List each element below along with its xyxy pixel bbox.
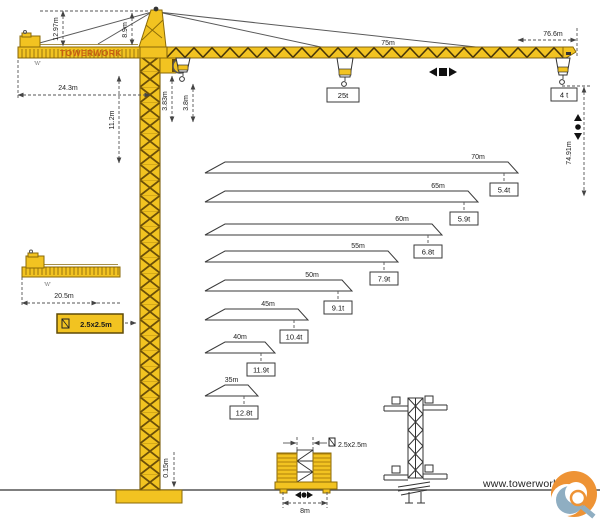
base-width-label: 8m (300, 508, 310, 515)
mast-section-label: 2.5x2.5m (80, 320, 112, 329)
hook-clearance-b-label: 3.8m (183, 95, 190, 111)
hook-travel-icon (574, 114, 582, 140)
counterweight-mark: 'W' (44, 282, 51, 288)
trolley-mid (337, 58, 353, 86)
anchorage-detail (384, 396, 447, 503)
jib-brand-text: TOWERWORK (60, 48, 122, 58)
jib-profile-65m (205, 191, 478, 202)
capacity-value: 6.8t (422, 248, 435, 257)
jib-profile-70m (205, 162, 518, 173)
jib-profile-55m (205, 251, 398, 262)
base-travel-icon (295, 492, 313, 499)
mast-section-badge: 2.5x2.5m (57, 314, 136, 333)
section-icon (329, 438, 335, 446)
jib-length-tick: 45m (261, 301, 275, 308)
jib-profile-50m (205, 280, 352, 291)
tip-pulley (566, 52, 571, 55)
apex-height-label: 8.9m (122, 22, 129, 38)
tower-apex (139, 10, 166, 47)
capacity-value: 5.4t (498, 186, 511, 195)
trolley-inner (176, 58, 190, 81)
towerwork-logo (551, 471, 597, 518)
hoist-winch (20, 36, 40, 47)
diagram-canvas: TOWERWORK 'W' 25t (0, 0, 600, 521)
foundation-block (116, 490, 182, 503)
trolley-tip (556, 58, 570, 84)
jib-profile-35m (205, 385, 258, 396)
jib-length-tick: 40m (233, 334, 247, 341)
counterweight-mark: 'W' (34, 61, 41, 67)
hoist-winch (26, 256, 44, 268)
crane-spec-diagram: TOWERWORK 'W' 25t (0, 0, 600, 521)
main-jib (167, 47, 563, 58)
tower-mast (140, 56, 160, 490)
head-height-label: 12.97m (53, 17, 60, 41)
counter-jib-length-label: 24.3m (58, 85, 78, 92)
jib-profile-45m (205, 309, 308, 320)
hook-clearance-a-label: 3.83m (162, 91, 169, 111)
hook-height-label: 74.91m (566, 141, 573, 165)
foundation-offset-label: 0.15m (163, 458, 170, 478)
mast-top-section-label: 11.2m (109, 110, 116, 129)
capacity-value: 7.9t (378, 275, 391, 284)
jib-length-tick: 70m (471, 154, 485, 161)
counter-jib-detail-length-label: 20.5m (54, 293, 74, 300)
load-capacity-chart: 70m5.4t65m5.9t60m6.8t55m7.9t50m9.1t45m10… (205, 154, 518, 419)
jib-length-tick: 55m (351, 243, 365, 250)
jib-length-tick: 60m (395, 216, 409, 223)
tie-bars (25, 12, 512, 51)
trolley-travel-icon (429, 68, 457, 77)
inner-tower-section-label: 2.5x2.5m (338, 442, 367, 449)
jib-length-tick: 65m (431, 183, 445, 190)
hook-icon (560, 80, 565, 85)
jib-profile-60m (205, 224, 442, 235)
hook-icon (180, 77, 185, 82)
max-radius-label: 76.6m (543, 31, 563, 38)
hook-icon (342, 82, 347, 87)
slewing-unit (140, 47, 167, 58)
inner-tower-detail: 2.5x2.5m 8m (275, 437, 367, 515)
capacity-value: 5.9t (458, 215, 471, 224)
capacity-value: 10.4t (286, 333, 304, 342)
tip-capacity-label: 4 t (560, 91, 569, 100)
apex-pulley (154, 7, 159, 12)
jib-length-tick: 50m (305, 272, 319, 279)
jib-length-label: 75m (381, 40, 395, 47)
crane-elevation: TOWERWORK 'W' 25t (18, 7, 577, 490)
max-capacity-label: 25t (338, 91, 349, 100)
capacity-value: 9.1t (332, 304, 345, 313)
jib-profile-40m (205, 342, 275, 353)
capacity-value: 11.9t (253, 366, 270, 375)
capacity-value: 12.8t (236, 409, 254, 418)
jib-length-tick: 35m (225, 377, 239, 384)
elevation-dimensions: 12.97m 8.9m 24.3m 11.2m 3.83m 3.8m 75m 7… (18, 11, 592, 487)
counter-jib-detail: 'W' 20.5m (22, 250, 120, 306)
